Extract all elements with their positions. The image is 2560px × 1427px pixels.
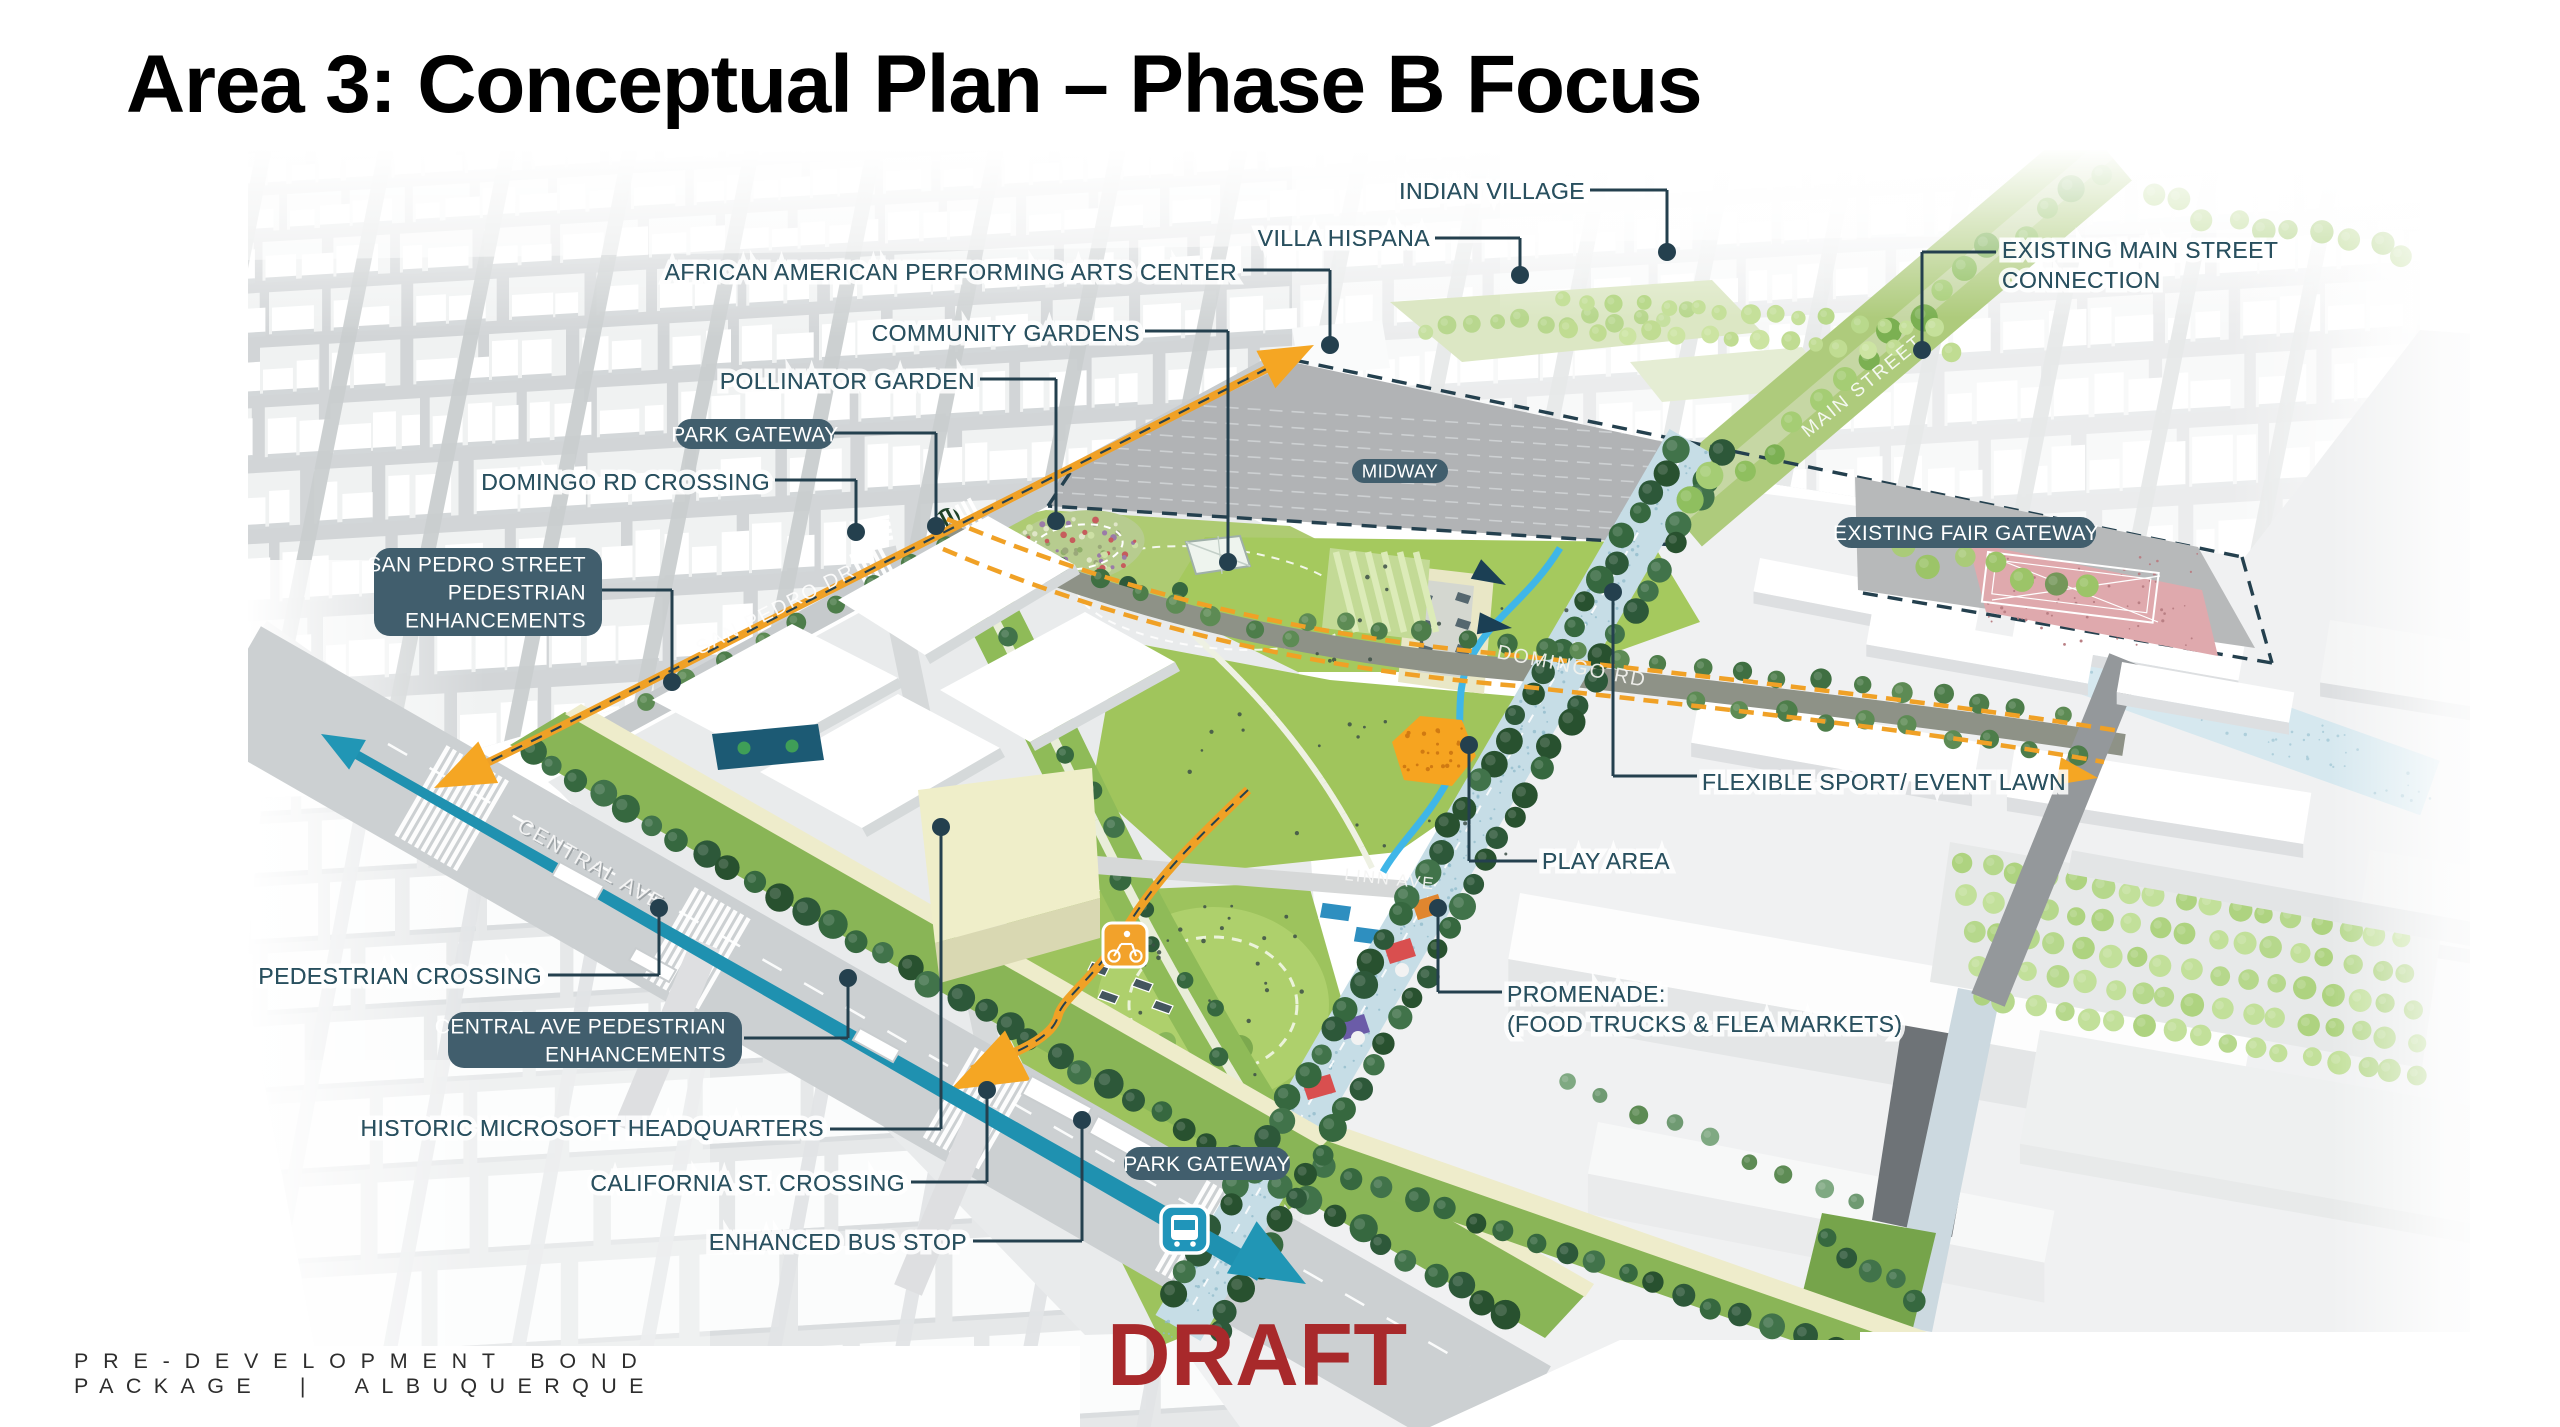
svg-text:CONNECTION: CONNECTION <box>2002 267 2161 293</box>
svg-text:EXISTING FAIR GATEWAY: EXISTING FAIR GATEWAY <box>1833 522 2099 545</box>
svg-text:MIDWAY: MIDWAY <box>1362 461 1438 482</box>
svg-text:SAN PEDRO STREET: SAN PEDRO STREET <box>367 553 586 576</box>
svg-text:PROMENADE:: PROMENADE: <box>1507 981 1666 1007</box>
svg-text:PARK GATEWAY: PARK GATEWAY <box>1123 1153 1290 1176</box>
svg-text:EXISTING MAIN STREET: EXISTING MAIN STREET <box>2002 237 2278 263</box>
svg-text:POLLINATOR GARDEN: POLLINATOR GARDEN <box>720 368 975 394</box>
svg-text:DOMINGO RD CROSSING: DOMINGO RD CROSSING <box>481 469 770 495</box>
svg-text:CALIFORNIA ST. CROSSING: CALIFORNIA ST. CROSSING <box>590 1170 905 1196</box>
svg-text:FLEXIBLE SPORT/ EVENT LAWN: FLEXIBLE SPORT/ EVENT LAWN <box>1702 769 2066 795</box>
svg-text:VILLA HISPANA: VILLA HISPANA <box>1258 225 1431 251</box>
svg-text:PEDESTRIAN CROSSING: PEDESTRIAN CROSSING <box>258 963 542 989</box>
svg-text:CENTRAL AVE PEDESTRIAN: CENTRAL AVE PEDESTRIAN <box>435 1015 726 1038</box>
svg-text:AFRICAN AMERICAN PERFORMING AR: AFRICAN AMERICAN PERFORMING ARTS CENTER <box>665 259 1237 285</box>
svg-text:COMMUNITY GARDENS: COMMUNITY GARDENS <box>872 320 1140 346</box>
svg-text:PEDESTRIAN: PEDESTRIAN <box>448 581 586 604</box>
svg-text:PARK GATEWAY: PARK GATEWAY <box>671 423 838 446</box>
svg-text:(FOOD TRUCKS & FLEA MARKETS): (FOOD TRUCKS & FLEA MARKETS) <box>1507 1011 1902 1037</box>
svg-text:INDIAN VILLAGE: INDIAN VILLAGE <box>1399 178 1585 204</box>
svg-text:ENHANCED BUS STOP: ENHANCED BUS STOP <box>709 1229 967 1255</box>
svg-text:HISTORIC MICROSOFT HEADQUARTER: HISTORIC MICROSOFT HEADQUARTERS <box>360 1115 824 1141</box>
svg-text:ENHANCEMENTS: ENHANCEMENTS <box>545 1043 726 1066</box>
svg-text:PLAY AREA: PLAY AREA <box>1542 848 1670 874</box>
svg-text:ENHANCEMENTS: ENHANCEMENTS <box>405 609 586 632</box>
